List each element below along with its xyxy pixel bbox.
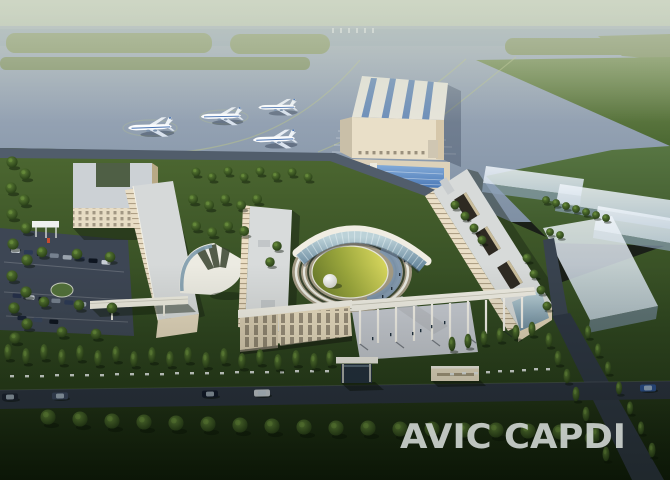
vignette: [0, 0, 670, 480]
aerial-rendering: AVIC CAPDI: [0, 0, 670, 480]
watermark-text: AVIC CAPDI: [400, 417, 626, 457]
rendering-stage: AVIC CAPDI: [0, 0, 670, 480]
